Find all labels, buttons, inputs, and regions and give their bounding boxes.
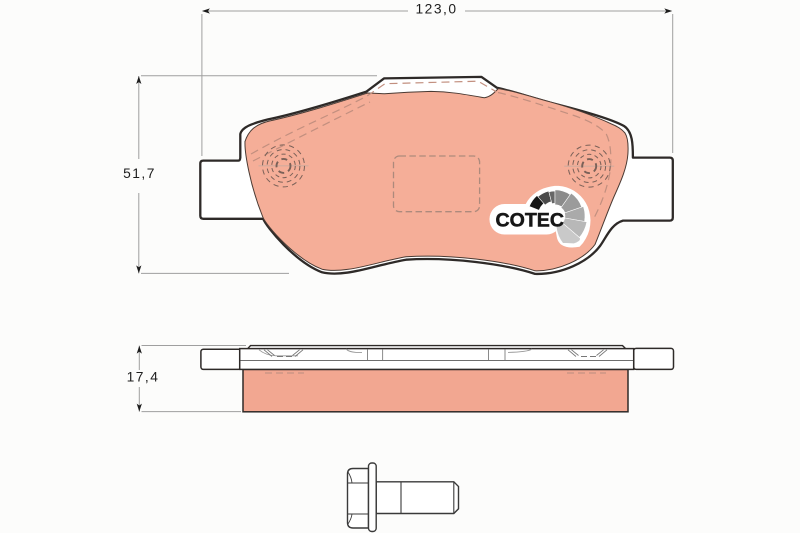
svg-text:COTEC: COTEC [496, 210, 565, 231]
svg-text:123,0: 123,0 [415, 1, 457, 16]
svg-text:17,4: 17,4 [127, 369, 160, 384]
svg-text:51,7: 51,7 [123, 166, 156, 181]
